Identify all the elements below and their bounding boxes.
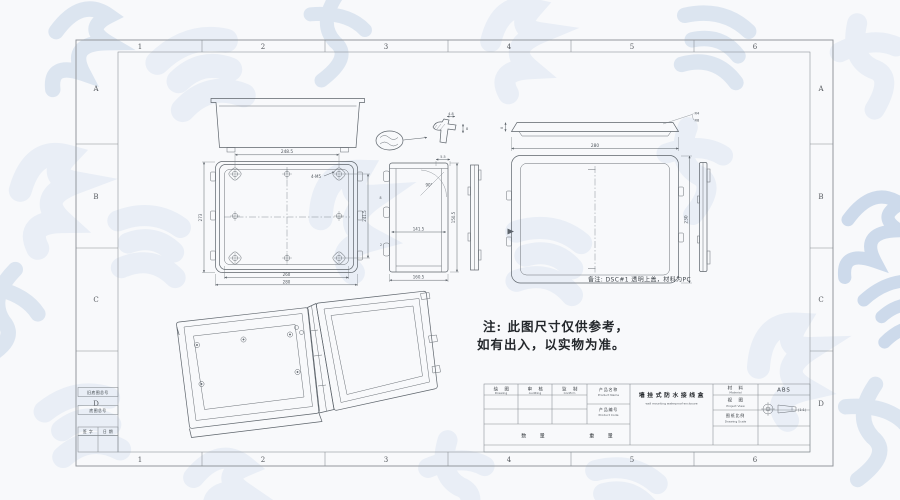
grid-col-label: 6	[753, 43, 758, 51]
dim-label: 280	[591, 143, 599, 149]
drawing-no-label: 底图总号	[89, 408, 106, 413]
grid-row-label: A	[817, 85, 824, 93]
title-block: 绘 图 Drawing 审 核 Auditing 监 制 Confirm 产品名…	[484, 384, 810, 452]
date-label: 日 期	[103, 429, 113, 434]
grid-row-label: B	[93, 193, 98, 201]
old-drawing-no-label: 旧底图总号	[87, 390, 108, 395]
grid-row-label: C	[93, 296, 98, 304]
grid-col-label: 3	[384, 43, 388, 51]
dim-label: 4.8	[448, 112, 453, 116]
drawing-sheet: 1 2 3 4 5 6 1 2 3 4 5 6 A B C D A B C D	[0, 0, 900, 500]
weight-label: 重 量	[589, 433, 619, 440]
dim-label: 4-M5	[311, 174, 321, 179]
dim-label: 8	[500, 127, 504, 129]
detail-balloon	[376, 131, 427, 150]
dim-label: 248.5	[281, 149, 294, 155]
quantity-label: 数 量	[521, 433, 551, 440]
material-value: ABS	[777, 388, 791, 394]
grid-row-label: A	[92, 85, 99, 93]
grid-row-label: D	[818, 400, 824, 408]
dim-label: 280	[283, 279, 291, 284]
product-name-label: 产品名称	[599, 386, 618, 392]
product-title: 墙挂式防水接线盒	[639, 391, 706, 399]
grid-col-label: 5	[630, 43, 634, 51]
grid-col-label: 4	[507, 456, 512, 464]
dim-label: 5.5	[440, 155, 445, 159]
product-code-label-en: Product Code	[598, 413, 618, 417]
dim-label: 150.5	[451, 211, 456, 223]
dim-label: 90°	[425, 183, 432, 188]
grid-col-label: 4	[507, 43, 512, 51]
scale-label-en: Drawing Scale	[725, 420, 747, 424]
grid-col-label: 3	[384, 456, 388, 464]
view-label: 视 图	[728, 397, 746, 404]
product-name-label-en: Product Name	[598, 393, 619, 397]
grid-row-label: B	[818, 193, 823, 201]
dim-label: 141.5	[413, 226, 425, 231]
view-base-side: 90° 141.5 160.5 150.5 5.5 8 2	[379, 155, 459, 282]
dim-label: 2	[380, 243, 382, 247]
dim-label: 273	[198, 213, 203, 221]
auditing-label-en: Auditing	[529, 391, 542, 395]
dim-label: R8	[695, 119, 700, 123]
view-base-top-profile	[211, 99, 365, 153]
dim-label: 241.5	[362, 210, 367, 222]
dim-label: 8	[379, 196, 381, 200]
grid-col-label: 6	[753, 456, 758, 464]
screw-bosses	[194, 326, 303, 387]
cover-material-note: 备注: DSC#1 透明上盖，材料为PC	[588, 276, 691, 284]
watermark-pattern	[0, 0, 900, 500]
sign-label: 签 字	[83, 429, 93, 434]
grid-col-label: 1	[138, 456, 142, 464]
confirm-label-en: Confirm	[564, 391, 576, 395]
detail-section: 4.8 8	[433, 112, 468, 143]
drawing-label-en: Drawing	[495, 391, 508, 395]
scale-label: 图纸比例	[726, 412, 745, 418]
view-strip-section	[468, 165, 481, 270]
dim-label: 8	[466, 127, 468, 131]
view-isometric-open	[177, 291, 441, 437]
grid-col-label: 1	[138, 43, 142, 51]
reference-note: 注: 此图尺寸仅供参考， 如有出入，以实物为准。	[477, 319, 629, 352]
grid-col-label: 2	[261, 43, 265, 51]
product-code-label: 产品编号	[599, 406, 618, 412]
material-label-en: Material	[729, 391, 741, 395]
grid-col-label: 2	[261, 456, 265, 464]
product-title-en: wall mounting waterproof enclosure	[645, 402, 697, 406]
dim-label: 160.5	[413, 275, 425, 280]
note-line-1: 注: 此图尺寸仅供参考，	[483, 319, 629, 334]
note-line-2: 如有出入，以实物为准。	[477, 337, 626, 352]
grid-col-label: 5	[630, 456, 634, 464]
dim-label: 230	[684, 215, 690, 223]
dim-label: R4	[695, 112, 700, 116]
view-label-en: Project View	[726, 404, 745, 408]
grid-row-label: C	[818, 296, 823, 304]
grid-row-label: D	[93, 400, 99, 408]
scale-value: (1:1)	[798, 408, 807, 412]
dim-label: 260	[283, 272, 291, 277]
